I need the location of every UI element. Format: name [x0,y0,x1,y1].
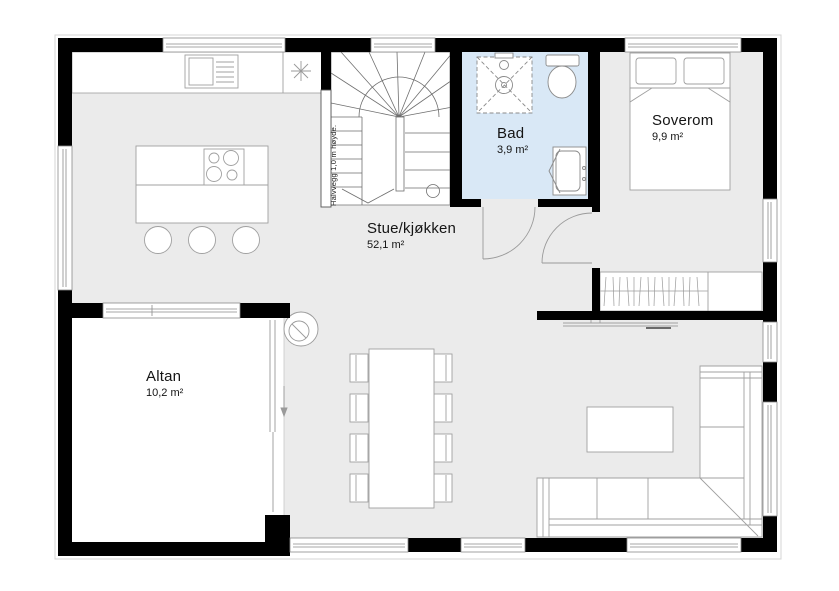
terrace-glass-door [103,303,240,318]
sink-stove-unit [185,55,238,88]
floor-terrace [65,310,284,550]
window [290,538,408,552]
chair-icon [434,434,452,462]
coffee-table [587,407,673,452]
stair-well [331,52,450,205]
wardrobe [600,272,762,311]
dining-table [369,349,434,508]
bathroom-sink-icon [549,147,586,195]
pillow-icon [636,58,676,84]
chair-icon [350,354,368,382]
floor-plan-drawing [0,0,839,591]
window [58,146,72,290]
bar-stools [145,227,260,254]
pillow-icon [684,58,724,84]
chair-icon [434,354,452,382]
chair-icon [434,394,452,422]
window [763,402,777,516]
kitchen-island [136,146,268,223]
window [627,538,741,552]
half-wall-annotation: Halvvegg 1,0 m høyde. [329,125,338,206]
window [461,538,525,552]
chair-icon [434,474,452,502]
chair-icon [350,434,368,462]
window [763,322,777,362]
bed [630,53,730,190]
asterisk-icon [291,61,311,81]
chair-icon [350,394,368,422]
chair-icon [350,474,368,502]
window [625,38,741,52]
sink-icon [189,58,213,85]
window [163,38,285,52]
window [371,38,435,52]
stair-newel [396,117,404,191]
window [763,199,777,262]
shower-icon [477,53,532,113]
floor-plan: Stue/kjøkken 52,1 m² Bad 3,9 m² Soverom … [0,0,839,591]
